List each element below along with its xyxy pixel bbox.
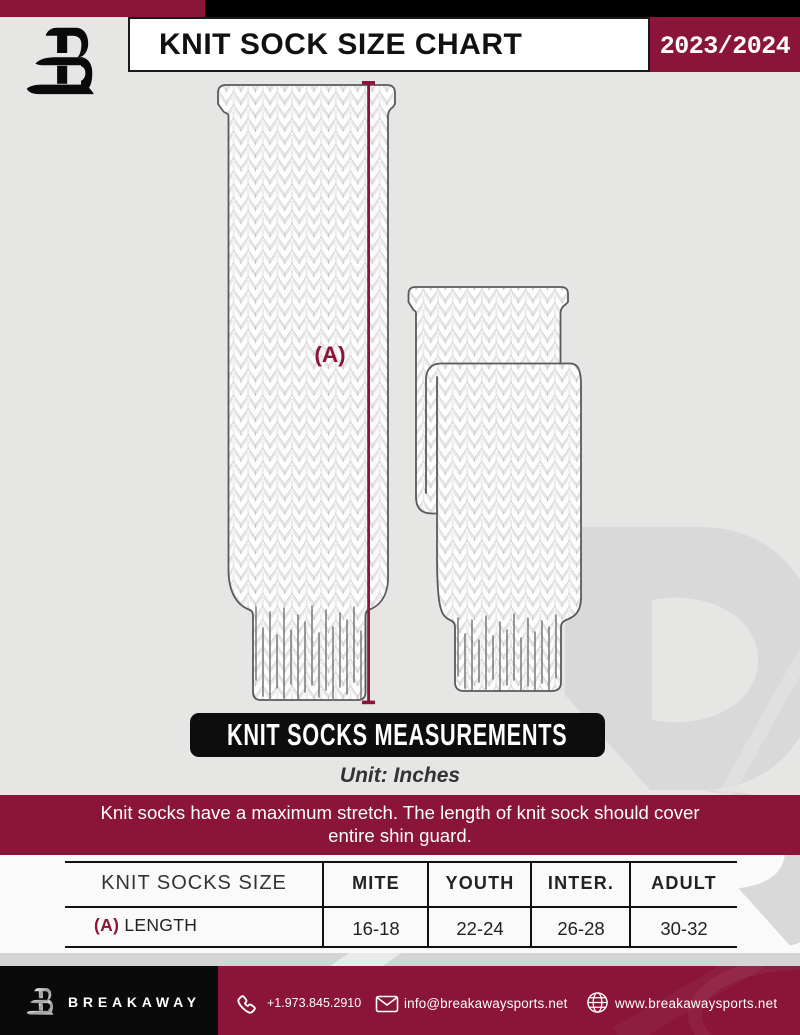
- svg-text:(A): (A): [314, 342, 345, 367]
